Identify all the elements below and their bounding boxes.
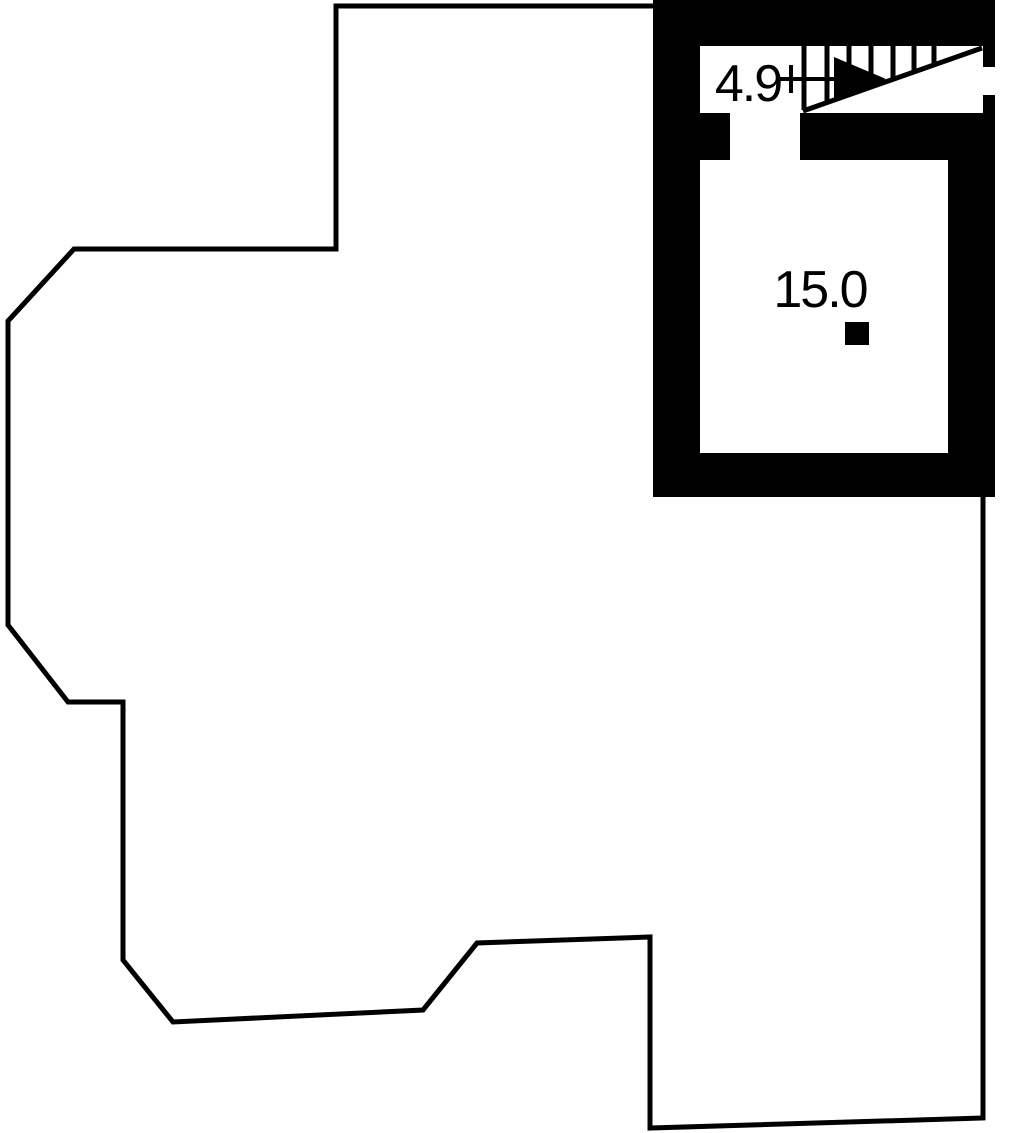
- arrowhead-icon: [834, 57, 886, 101]
- chimney-marker: [845, 322, 869, 345]
- room-area-label: 15.0: [773, 261, 866, 319]
- stairwell-area-label: 4.9: [715, 55, 781, 113]
- terrace-outline: [8, 6, 983, 1128]
- floor-plan: 4.9 15.0: [0, 0, 1019, 1133]
- staircase-symbol: [776, 46, 982, 111]
- floor-plan-drawing: 4.9 15.0: [0, 0, 1019, 1133]
- enclosure-walls: [653, 0, 995, 497]
